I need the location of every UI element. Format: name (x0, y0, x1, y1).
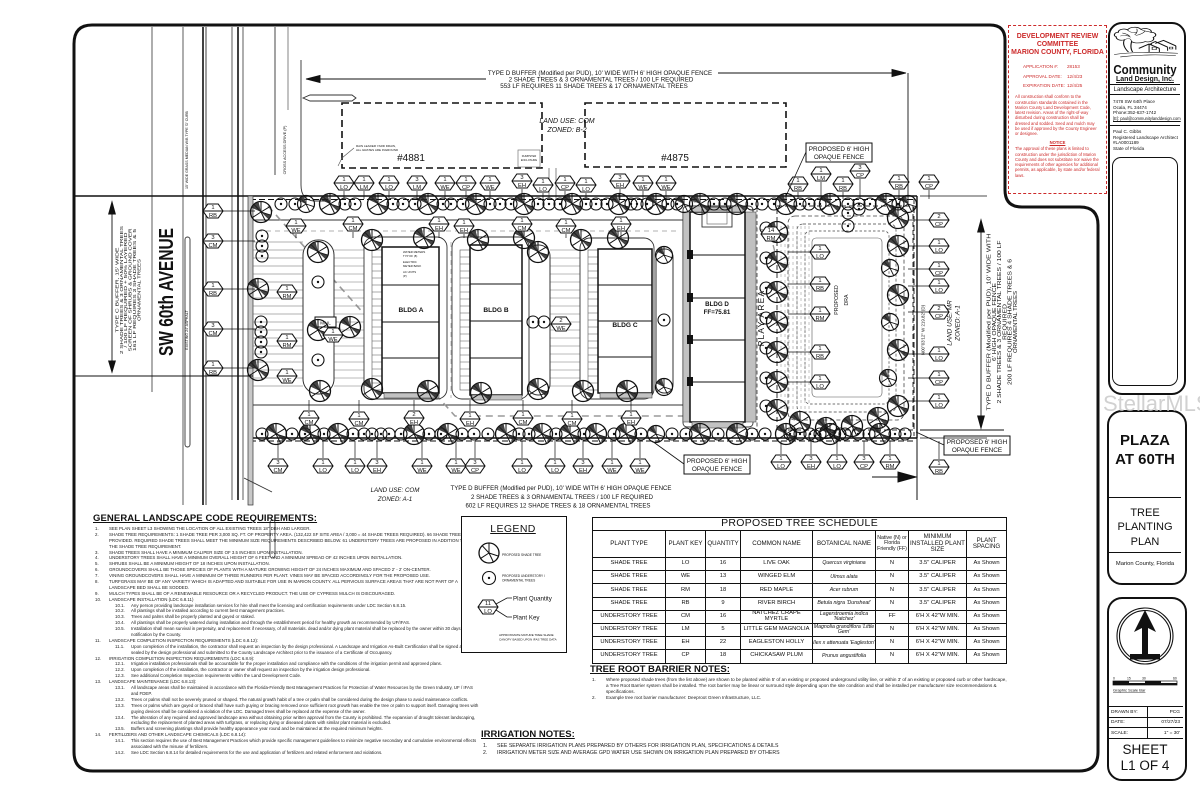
svg-text:602 LF REQUIRES 12 SHADE TREES: 602 LF REQUIRES 12 SHADE TREES & 18 ORNA… (465, 503, 650, 510)
svg-text:1: 1 (664, 177, 667, 183)
svg-text:1: 1 (897, 176, 900, 182)
svg-text:WE: WE (556, 326, 565, 332)
svg-text:1: 1 (937, 240, 940, 246)
svg-text:WE: WE (328, 337, 337, 343)
svg-text:1: 1 (342, 177, 345, 183)
svg-text:LO: LO (777, 464, 785, 470)
svg-text:2: 2 (559, 318, 562, 324)
svg-text:1: 1 (468, 413, 471, 419)
svg-text:1: 1 (285, 335, 288, 341)
svg-text:EH: EH (466, 421, 474, 427)
svg-text:EH: EH (617, 226, 625, 232)
svg-text:CM: CM (354, 421, 363, 427)
svg-text:PLAY AREA: PLAY AREA (756, 290, 766, 347)
svg-text:RB: RB (816, 354, 824, 360)
svg-text:EH: EH (616, 183, 624, 189)
svg-text:LO: LO (340, 185, 348, 191)
svg-text:2: 2 (937, 306, 940, 312)
svg-text:EH: EH (627, 420, 635, 426)
svg-text:PROPOSED SHADE TREE: PROPOSED SHADE TREE (502, 553, 541, 557)
svg-text:LO: LO (319, 468, 327, 474)
svg-text:1: 1 (331, 329, 334, 335)
svg-text:LO: LO (935, 248, 943, 254)
svg-text:1: 1 (553, 460, 556, 466)
svg-text:WE: WE (440, 185, 449, 191)
svg-text:CP: CP (860, 464, 868, 470)
svg-text:11: 11 (485, 601, 491, 607)
svg-text:1: 1 (443, 177, 446, 183)
svg-text:1: 1 (420, 460, 423, 466)
svg-text:ORNAMENTAL TREES: ORNAMENTAL TREES (502, 579, 535, 583)
svg-text:ZONED: A-1: ZONED: A-1 (955, 305, 962, 342)
svg-text:PROPOSED: PROPOSED (834, 285, 840, 315)
svg-text:LO: LO (551, 468, 559, 474)
svg-text:1: 1 (462, 220, 465, 226)
svg-text:LM: LM (413, 185, 421, 191)
svg-text:CM: CM (208, 243, 217, 249)
svg-text:15: 15 (1127, 677, 1131, 681)
svg-text:1: 1 (357, 413, 360, 419)
svg-text:3: 3 (618, 175, 621, 181)
svg-text:1: 1 (937, 280, 940, 286)
svg-text:1: 1 (796, 178, 799, 184)
svg-text:CM: CM (517, 226, 526, 232)
svg-text:RM: RM (885, 464, 894, 470)
svg-text:EH: EH (410, 420, 418, 426)
svg-text:3: 3 (473, 460, 476, 466)
svg-text:1: 1 (454, 460, 457, 466)
svg-text:1: 1 (818, 278, 821, 284)
svg-text:LO: LO (833, 464, 841, 470)
svg-text:1: 1 (629, 412, 632, 418)
svg-text:EXISTING 24' ASPHALT: EXISTING 24' ASPHALT (185, 310, 189, 350)
svg-text:CM: CM (561, 228, 570, 234)
svg-text:WE: WE (417, 468, 426, 474)
svg-text:CM: CM (304, 420, 313, 426)
svg-text:1: 1 (619, 218, 622, 224)
svg-text:DRA: DRA (844, 294, 850, 305)
svg-text:RB: RB (209, 370, 217, 376)
svg-text:3: 3 (211, 323, 214, 329)
svg-text:CROSS ACCESS DRIVE (P): CROSS ACCESS DRIVE (P) (283, 125, 287, 174)
svg-text:CP: CP (561, 185, 569, 191)
svg-text:LO: LO (935, 288, 943, 294)
svg-text:CP: CP (935, 222, 943, 228)
svg-text:RM: RM (815, 316, 824, 322)
svg-text:LO: LO (935, 356, 943, 362)
svg-text:3: 3 (862, 456, 865, 462)
svg-text:LAND USE: COM: LAND USE: COM (539, 118, 594, 125)
svg-text:CP: CP (935, 380, 943, 386)
svg-text:(P): (P) (403, 274, 407, 278)
svg-text:60: 60 (1173, 677, 1177, 681)
svg-text:3: 3 (520, 175, 523, 181)
svg-text:EH: EH (579, 468, 587, 474)
svg-text:1: 1 (307, 412, 310, 418)
svg-text:RB: RB (895, 184, 903, 190)
svg-text:CP: CP (925, 184, 933, 190)
svg-text:DUMPSTER: DUMPSTER (522, 154, 537, 158)
svg-text:553 LF REQUIRES 11 SHADE TREES: 553 LF REQUIRES 11 SHADE TREES & 17 ORNA… (500, 83, 687, 90)
svg-text:1: 1 (610, 460, 613, 466)
svg-text:1: 1 (937, 263, 940, 269)
svg-text:RM: RM (766, 236, 775, 242)
svg-text:1: 1 (818, 246, 821, 252)
svg-text:LO: LO (935, 403, 943, 409)
svg-text:CP: CP (856, 173, 864, 179)
svg-text:TYPE D BUFFER (Modified per PU: TYPE D BUFFER (Modified per PUD), 10' WI… (451, 485, 672, 492)
svg-text:LO: LO (518, 468, 526, 474)
svg-text:1: 1 (841, 178, 844, 184)
svg-text:1: 1 (211, 362, 214, 368)
svg-text:OPAQUE FENCE: OPAQUE FENCE (952, 447, 1002, 454)
svg-text:BLDG B: BLDG B (483, 307, 509, 314)
svg-text:1: 1 (570, 413, 573, 419)
svg-text:WE: WE (451, 468, 460, 474)
svg-text:N00°03'12" W 219.82' (D): N00°03'12" W 219.82' (D) (921, 304, 926, 355)
svg-text:1: 1 (563, 177, 566, 183)
svg-text:LO: LO (816, 254, 824, 260)
svg-text:PROPOSED 6' HIGH: PROPOSED 6' HIGH (687, 458, 748, 465)
svg-text:1: 1 (937, 372, 940, 378)
svg-text:14: 14 (768, 228, 775, 234)
svg-text:WE: WE (282, 378, 291, 384)
svg-text:LO: LO (351, 468, 359, 474)
svg-text:LO: LO (582, 187, 590, 193)
svg-text:BLDG A: BLDG A (398, 307, 423, 314)
svg-text:1: 1 (353, 460, 356, 466)
svg-text:RB: RB (935, 469, 943, 475)
svg-text:ENCLOSURE: ENCLOSURE (521, 158, 537, 162)
svg-text:1: 1 (321, 460, 324, 466)
svg-text:BLDG D: BLDG D (705, 301, 729, 308)
svg-text:1: 1 (564, 220, 567, 226)
svg-text:#4881: #4881 (397, 153, 425, 164)
svg-text:CM: CM (273, 468, 282, 474)
svg-text:1: 1 (285, 370, 288, 376)
svg-text:ZONED: B-2: ZONED: B-2 (546, 127, 586, 134)
svg-text:ALL GRATES ARE INGROUND: ALL GRATES ARE INGROUND (356, 148, 399, 152)
svg-text:1: 1 (285, 286, 288, 292)
svg-text:LO: LO (484, 609, 492, 615)
svg-text:CP: CP (462, 185, 470, 191)
svg-text:OPAQUE FENCE: OPAQUE FENCE (814, 154, 864, 161)
svg-text:RB: RB (794, 186, 802, 192)
svg-text:3: 3 (809, 456, 812, 462)
svg-text:1: 1 (464, 177, 467, 183)
svg-text:ORNAMENTAL TREES: ORNAMENTAL TREES (1013, 290, 1019, 353)
svg-text:1: 1 (937, 348, 940, 354)
svg-text:2: 2 (937, 214, 940, 220)
svg-text:1: 1 (520, 460, 523, 466)
svg-text:OPAQUE FENCE: OPAQUE FENCE (692, 466, 742, 473)
svg-text:LO: LO (539, 187, 547, 193)
svg-text:Plant Key: Plant Key (513, 615, 540, 622)
svg-text:RB: RB (839, 186, 847, 192)
svg-text:EH: EH (460, 228, 468, 234)
svg-text:CP: CP (935, 314, 943, 320)
svg-text:FF=75.81: FF=75.81 (704, 309, 731, 316)
svg-text:PROPOSED UNDERSTORY /: PROPOSED UNDERSTORY / (502, 574, 545, 578)
svg-text:3: 3 (211, 235, 214, 241)
svg-text:1: 1 (641, 177, 644, 183)
svg-text:APPROXIMATE MATURE TREE SHADE: APPROXIMATE MATURE TREE SHADE (499, 633, 554, 637)
svg-text:CP: CP (471, 468, 479, 474)
svg-text:WE: WE (635, 468, 644, 474)
svg-text:15' WIDE GRASS MEDIAN W/B TYPE: 15' WIDE GRASS MEDIAN W/B TYPE 'D' CURB (185, 110, 189, 188)
svg-text:3: 3 (858, 165, 861, 171)
svg-text:1: 1 (362, 177, 365, 183)
svg-text:1: 1 (584, 179, 587, 185)
svg-text:LM: LM (360, 185, 368, 191)
svg-text:1: 1 (541, 179, 544, 185)
svg-text:WE: WE (661, 185, 670, 191)
svg-text:Plant Quantity: Plant Quantity (513, 596, 553, 603)
svg-text:1: 1 (818, 376, 821, 382)
svg-text:CM: CM (348, 226, 357, 232)
svg-text:1: 1 (818, 308, 821, 314)
svg-text:1: 1 (818, 346, 821, 352)
svg-text:#4875: #4875 (661, 153, 689, 164)
svg-text:3: 3 (276, 460, 279, 466)
svg-text:PROPOSED 6' HIGH: PROPOSED 6' HIGH (809, 146, 870, 153)
svg-text:LM: LM (817, 176, 825, 182)
svg-text:EH: EH (435, 226, 443, 232)
svg-text:WE: WE (291, 228, 300, 234)
svg-text:EH: EH (807, 464, 815, 470)
svg-text:3: 3 (375, 460, 378, 466)
svg-text:LO: LO (385, 185, 393, 191)
svg-text:1: 1 (387, 177, 390, 183)
svg-text:CANOPY BASED UPON IFAS TREE DA: CANOPY BASED UPON IFAS TREE DATA (499, 638, 557, 642)
svg-text:ZONED: A-1: ZONED: A-1 (377, 496, 413, 503)
svg-text:1: 1 (488, 177, 491, 183)
svg-text:1: 1 (779, 456, 782, 462)
svg-text:1: 1 (211, 205, 214, 211)
svg-text:2: 2 (412, 412, 415, 418)
svg-text:1: 1 (294, 220, 297, 226)
svg-text:CM: CM (208, 331, 217, 337)
svg-text:1: 1 (437, 218, 440, 224)
svg-text:SW 60th AVENUE: SW 60th AVENUE (156, 228, 178, 356)
svg-text:1: 1 (351, 218, 354, 224)
svg-text:Graphic Scale Bar: Graphic Scale Bar (1113, 688, 1146, 693)
svg-text:TYP OF (8): TYP OF (8) (403, 254, 417, 258)
svg-text:PROPOSED 6' HIGH: PROPOSED 6' HIGH (947, 439, 1008, 446)
svg-text:LO: LO (816, 384, 824, 390)
svg-text:1: 1 (211, 283, 214, 289)
svg-text:1: 1 (888, 456, 891, 462)
svg-text:LAND USE: COM: LAND USE: COM (371, 487, 421, 494)
svg-text:CM: CM (518, 420, 527, 426)
svg-text:WE: WE (607, 468, 616, 474)
svg-text:RB: RB (816, 286, 824, 292)
svg-text:1: 1 (521, 412, 524, 418)
svg-text:RB: RB (209, 291, 217, 297)
svg-text:EH: EH (518, 183, 526, 189)
svg-text:1: 1 (927, 176, 930, 182)
svg-text:1: 1 (819, 168, 822, 174)
svg-text:1: 1 (937, 395, 940, 401)
svg-text:0: 0 (1113, 677, 1115, 681)
svg-text:30: 30 (1142, 677, 1146, 681)
svg-text:CP: CP (935, 271, 943, 277)
svg-text:EH: EH (373, 468, 381, 474)
svg-text:1: 1 (835, 456, 838, 462)
svg-text:2 SHADE TREES & 3 ORNAMENTAL T: 2 SHADE TREES & 3 ORNAMENTAL TREES / 100… (471, 494, 654, 501)
svg-text:1: 1 (638, 460, 641, 466)
svg-text:BLDG C: BLDG C (612, 322, 638, 329)
svg-text:WE: WE (638, 185, 647, 191)
svg-text:LAND USE: MR: LAND USE: MR (947, 300, 954, 346)
svg-text:3: 3 (415, 177, 418, 183)
svg-text:METER BANK: METER BANK (403, 264, 421, 268)
svg-text:ORNAMENTAL TREES: ORNAMENTAL TREES (136, 259, 141, 321)
svg-text:1: 1 (520, 218, 523, 224)
svg-text:1: 1 (937, 461, 940, 467)
svg-text:3: 3 (581, 460, 584, 466)
svg-text:RB: RB (209, 213, 217, 219)
svg-text:CM: CM (567, 421, 576, 427)
svg-text:RM: RM (282, 294, 291, 300)
svg-text:RM: RM (282, 343, 291, 349)
svg-text:WE: WE (485, 185, 494, 191)
